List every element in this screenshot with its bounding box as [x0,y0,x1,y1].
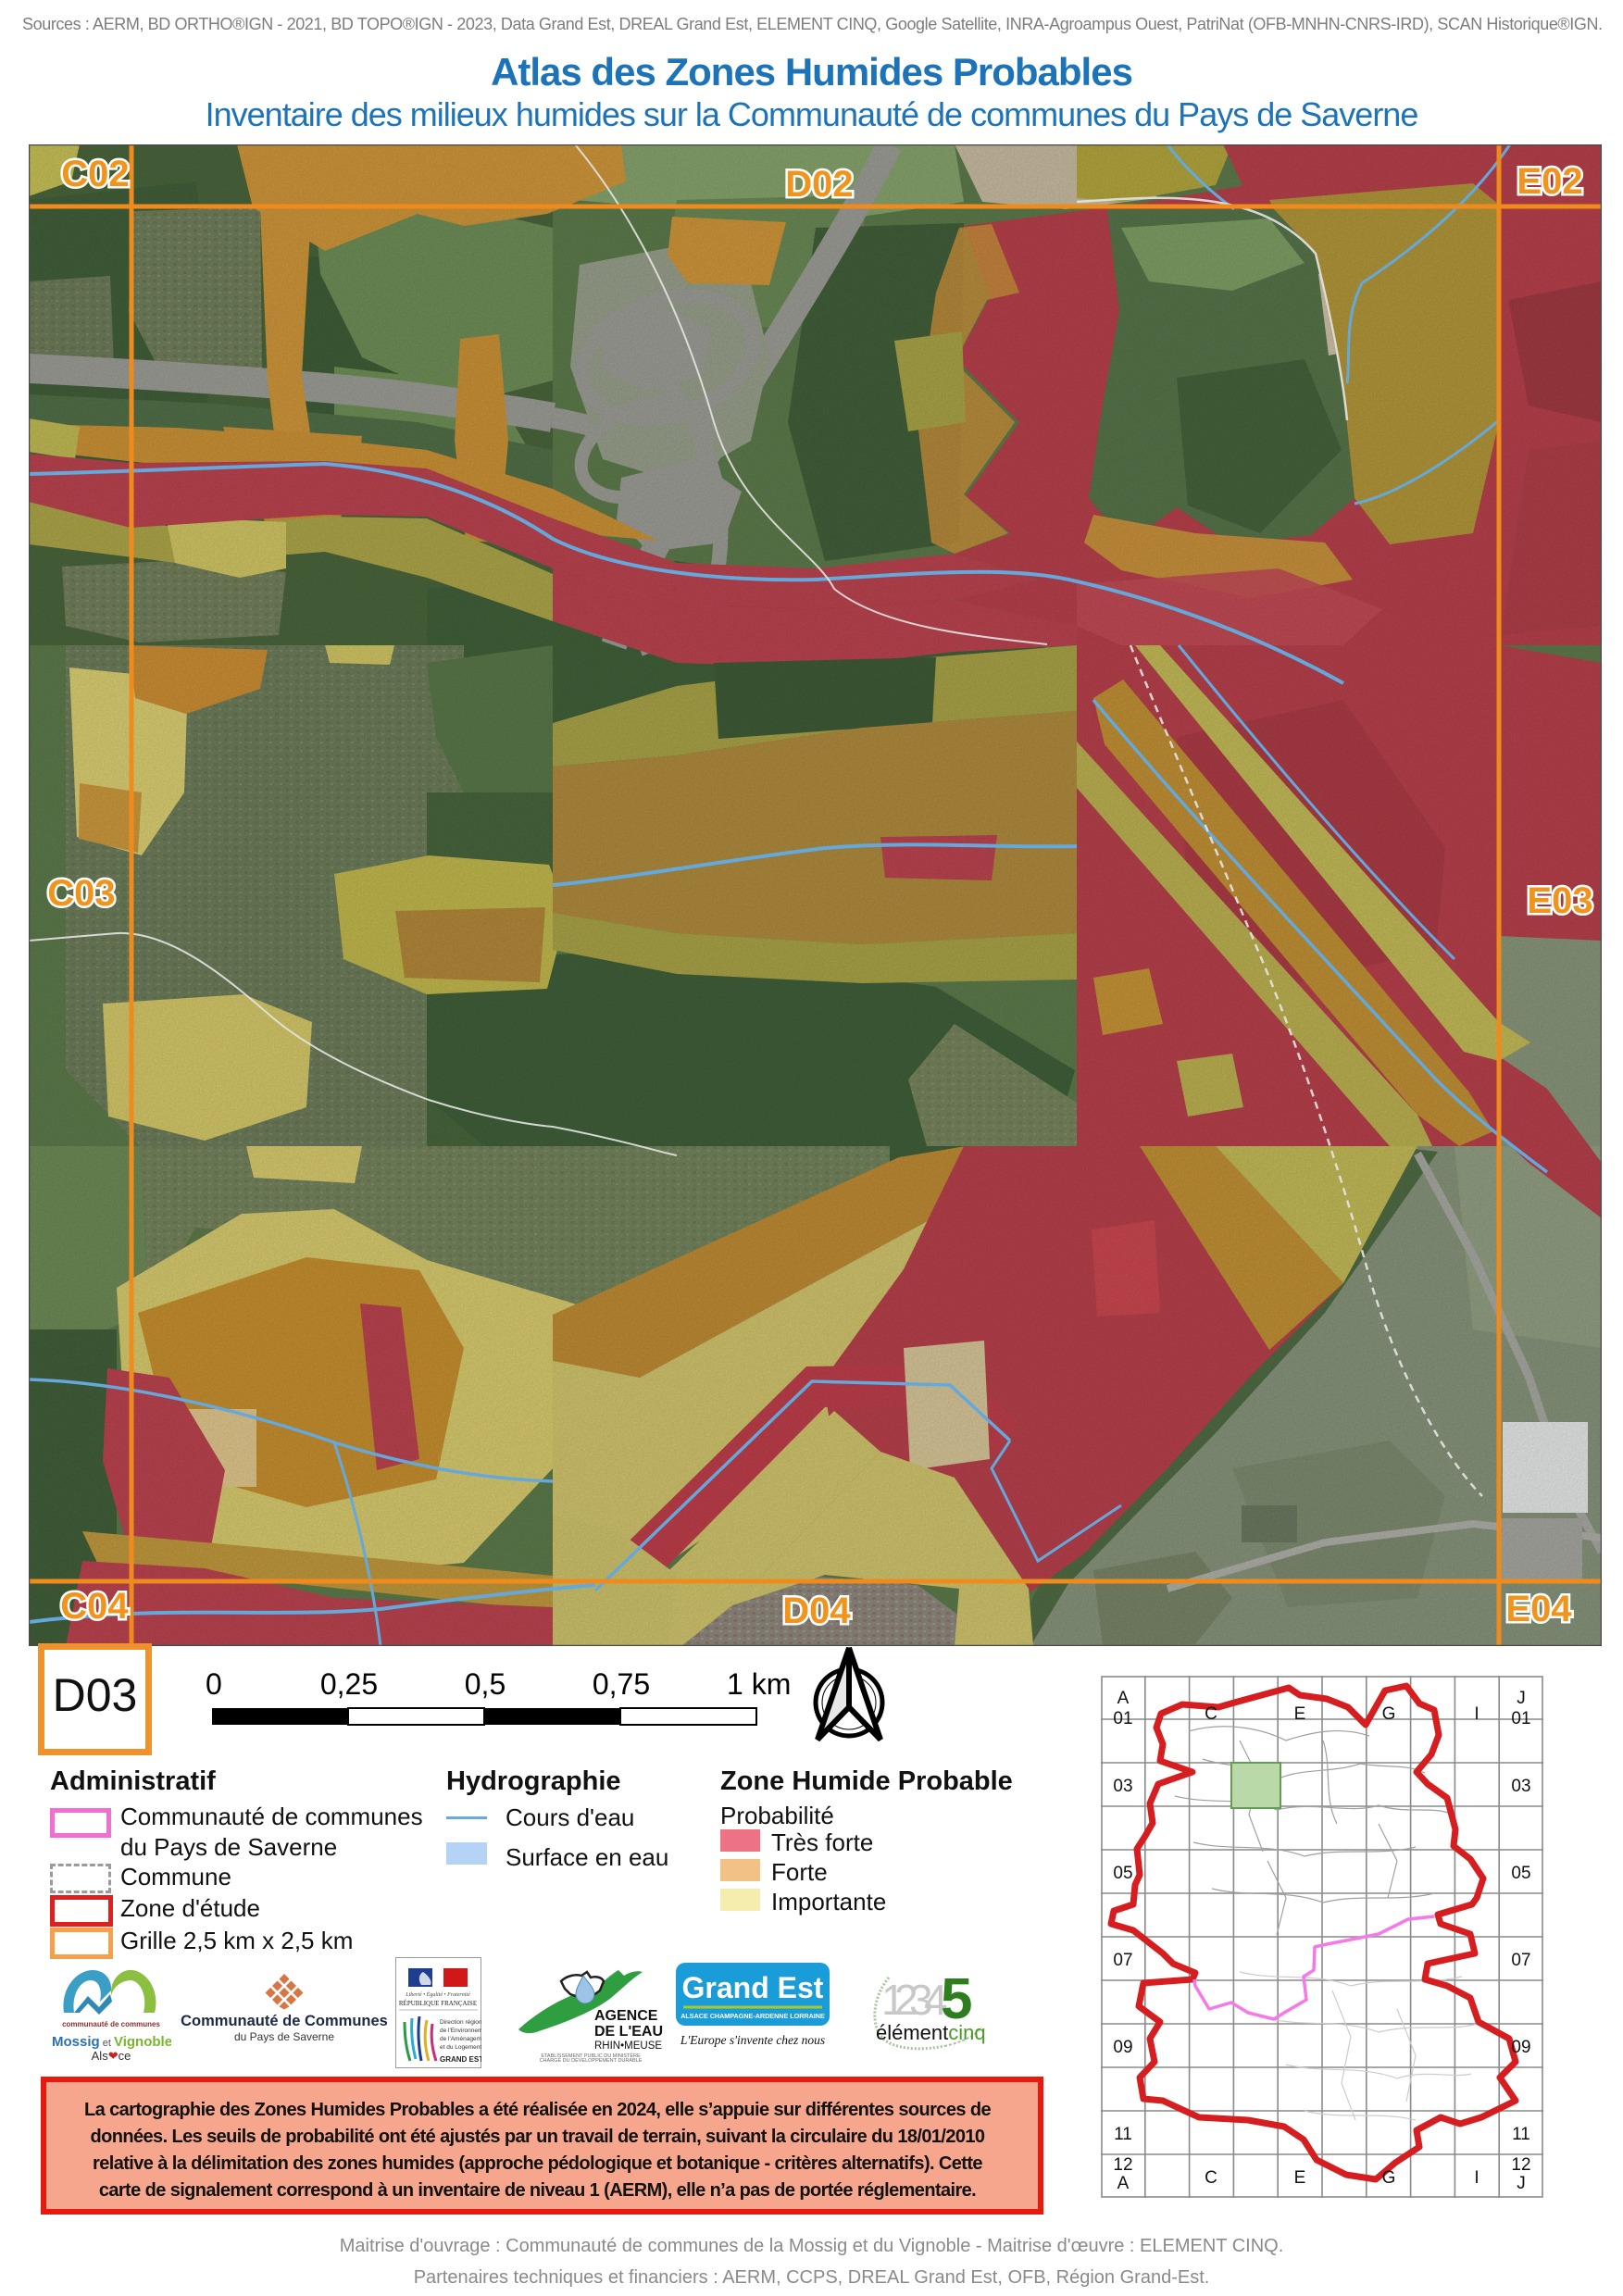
svg-text:CHARGÉ DU DÉVELOPPEMENT DURABL: CHARGÉ DU DÉVELOPPEMENT DURABLE [540,2057,643,2063]
svg-text:E03: E03 [1527,880,1592,921]
svg-text:09: 09 [1511,2038,1530,2057]
svg-text:1 km: 1 km [727,1667,791,1701]
svg-text:0,25: 0,25 [320,1667,378,1701]
svg-text:0,5: 0,5 [465,1667,506,1701]
svg-text:11: 11 [1512,2125,1530,2144]
svg-text:Direction régionale: Direction régionale [440,2019,481,2026]
svg-text:05: 05 [1511,1864,1530,1883]
svg-text:C03: C03 [47,873,115,914]
svg-text:Mossig et Vignoble: Mossig et Vignoble [52,2034,171,2050]
svg-text:I: I [1474,1704,1479,1724]
svg-text:D04: D04 [782,1591,851,1631]
svg-text:C: C [1205,2168,1217,2188]
svg-text:L'Europe s'invente chez nous: L'Europe s'invente chez nous [680,2033,825,2047]
svg-text:C02: C02 [61,154,129,194]
svg-text:E02: E02 [1517,161,1582,202]
svg-text:Liberté • Égalité • Fraternité: Liberté • Égalité • Fraternité [405,1990,470,1998]
svg-text:RHIN•MEUSE: RHIN•MEUSE [594,2040,662,2052]
svg-text:G: G [1382,1704,1396,1724]
svg-text:RÉPUBLIQUE FRANÇAISE: RÉPUBLIQUE FRANÇAISE [399,2000,477,2007]
svg-text:élémentcinq: élémentcinq [876,2021,986,2044]
svg-text:11: 11 [1114,2125,1132,2144]
svg-text:07: 07 [1511,1951,1530,1970]
svg-text:GRAND EST: GRAND EST [440,2055,481,2064]
svg-text:0,75: 0,75 [593,1667,650,1701]
svg-text:ALSACE CHAMPAGNE-ARDENNE LORRA: ALSACE CHAMPAGNE-ARDENNE LORRAINE [680,2012,825,2020]
svg-text:07: 07 [1113,1951,1132,1970]
svg-text:du Pays de Saverne: du Pays de Saverne [234,2030,334,2043]
svg-text:E: E [1294,2168,1306,2188]
svg-text:A: A [1117,1689,1130,1708]
svg-text:Communauté de Communes: Communauté de Communes [181,2013,388,2029]
svg-text:C04: C04 [60,1586,129,1627]
svg-text:Grand Est: Grand Est [682,1971,824,2004]
svg-text:0: 0 [206,1667,222,1701]
svg-text:et du Logement: et du Logement [440,2044,481,2051]
svg-text:A: A [1117,2174,1130,2193]
svg-text:01: 01 [1511,1709,1530,1728]
svg-text:12: 12 [1113,2155,1132,2175]
svg-text:D02: D02 [785,164,853,205]
svg-text:E04: E04 [1505,1589,1572,1629]
svg-text:DE L'EAU: DE L'EAU [594,2024,663,2040]
svg-text:03: 03 [1113,1777,1132,1796]
svg-text:01: 01 [1113,1709,1132,1728]
svg-text:C: C [1205,1704,1217,1724]
svg-text:communauté de communes: communauté de communes [62,2020,160,2028]
svg-text:09: 09 [1113,2038,1132,2057]
svg-text:E: E [1294,1704,1306,1724]
svg-text:de l'Aménagement: de l'Aménagement [440,2036,481,2042]
svg-text:I: I [1474,2168,1479,2188]
svg-text:03: 03 [1511,1777,1530,1796]
svg-text:05: 05 [1113,1864,1132,1883]
svg-text:de l'Environnement,: de l'Environnement, [440,2028,481,2034]
svg-text:J: J [1517,1689,1526,1708]
svg-text:G: G [1382,2168,1396,2188]
svg-text:12: 12 [1511,2155,1530,2175]
svg-text:J: J [1517,2174,1526,2193]
svg-text:Als❤ce: Als❤ce [92,2049,131,2063]
svg-text:AGENCE: AGENCE [594,2008,658,2024]
